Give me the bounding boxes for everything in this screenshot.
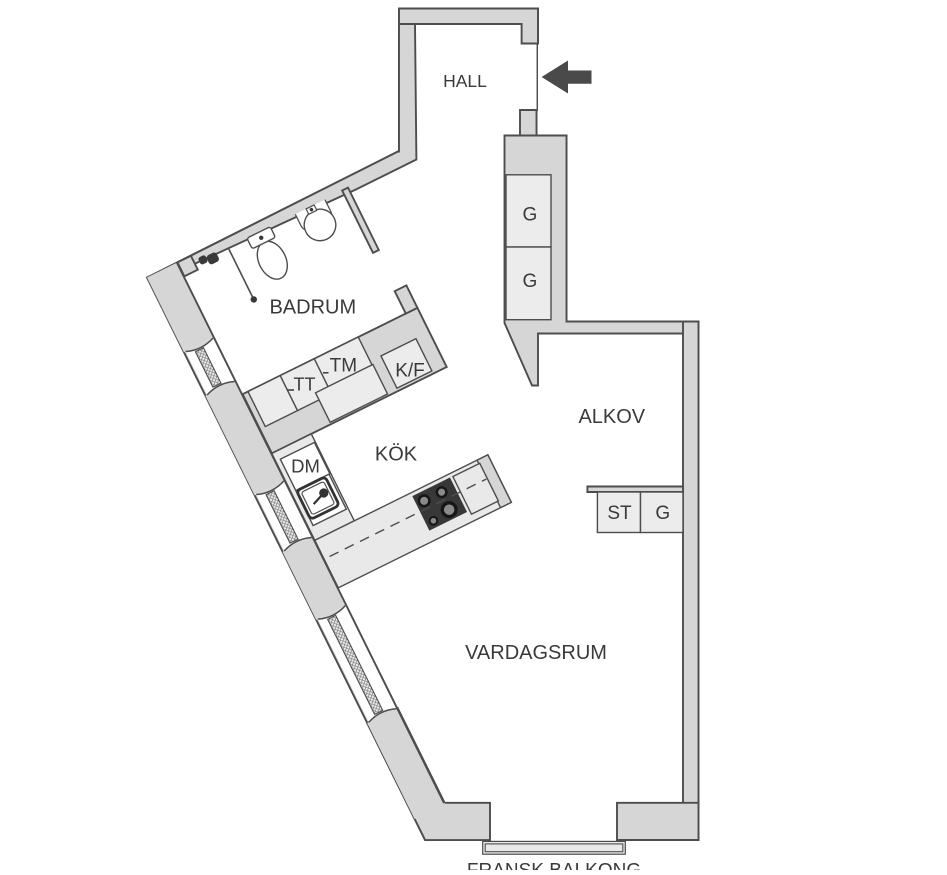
svg-text:FRANSK BALKONG: FRANSK BALKONG xyxy=(467,860,641,870)
svg-text:ALKOV: ALKOV xyxy=(578,406,645,428)
svg-text:HALL: HALL xyxy=(443,71,487,91)
svg-text:G: G xyxy=(523,271,538,292)
svg-text:G: G xyxy=(523,205,538,226)
svg-text:TT: TT xyxy=(294,375,316,395)
svg-text:ST: ST xyxy=(607,503,632,524)
svg-text:K/F: K/F xyxy=(395,361,425,382)
svg-text:DM: DM xyxy=(291,456,320,477)
svg-text:KÖK: KÖK xyxy=(375,444,418,466)
svg-text:VARDAGSRUM: VARDAGSRUM xyxy=(465,642,607,664)
svg-text:G: G xyxy=(655,503,670,524)
svg-text:TM: TM xyxy=(330,356,357,377)
svg-text:BADRUM: BADRUM xyxy=(269,296,356,318)
